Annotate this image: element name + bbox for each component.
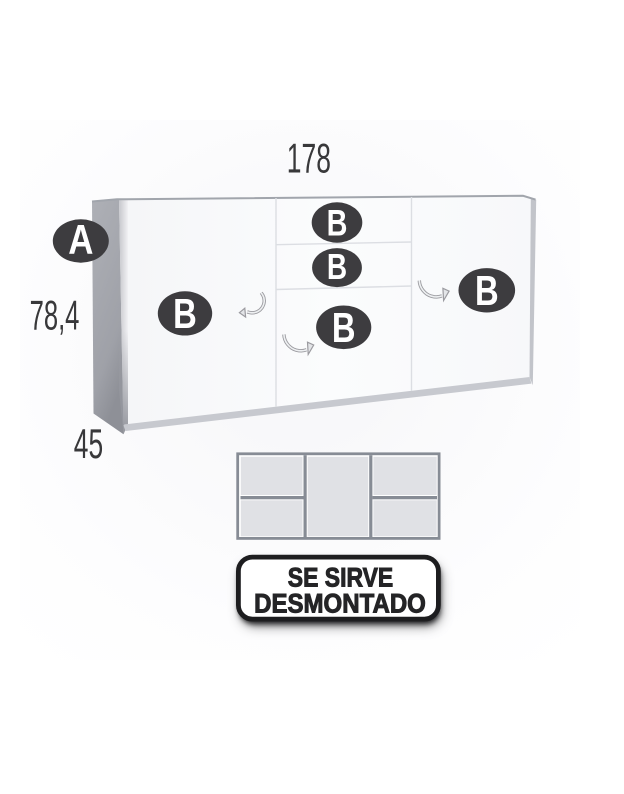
svg-text:B: B (332, 304, 356, 351)
svg-text:B: B (173, 290, 197, 337)
svg-text:B: B (327, 247, 347, 287)
svg-text:B: B (475, 267, 499, 314)
svg-text:178: 178 (287, 137, 331, 182)
svg-text:78,4: 78,4 (30, 293, 80, 339)
svg-text:45: 45 (74, 422, 103, 467)
svg-text:A: A (68, 217, 93, 264)
svg-text:DESMONTADO: DESMONTADO (254, 589, 426, 619)
svg-text:B: B (327, 203, 348, 244)
